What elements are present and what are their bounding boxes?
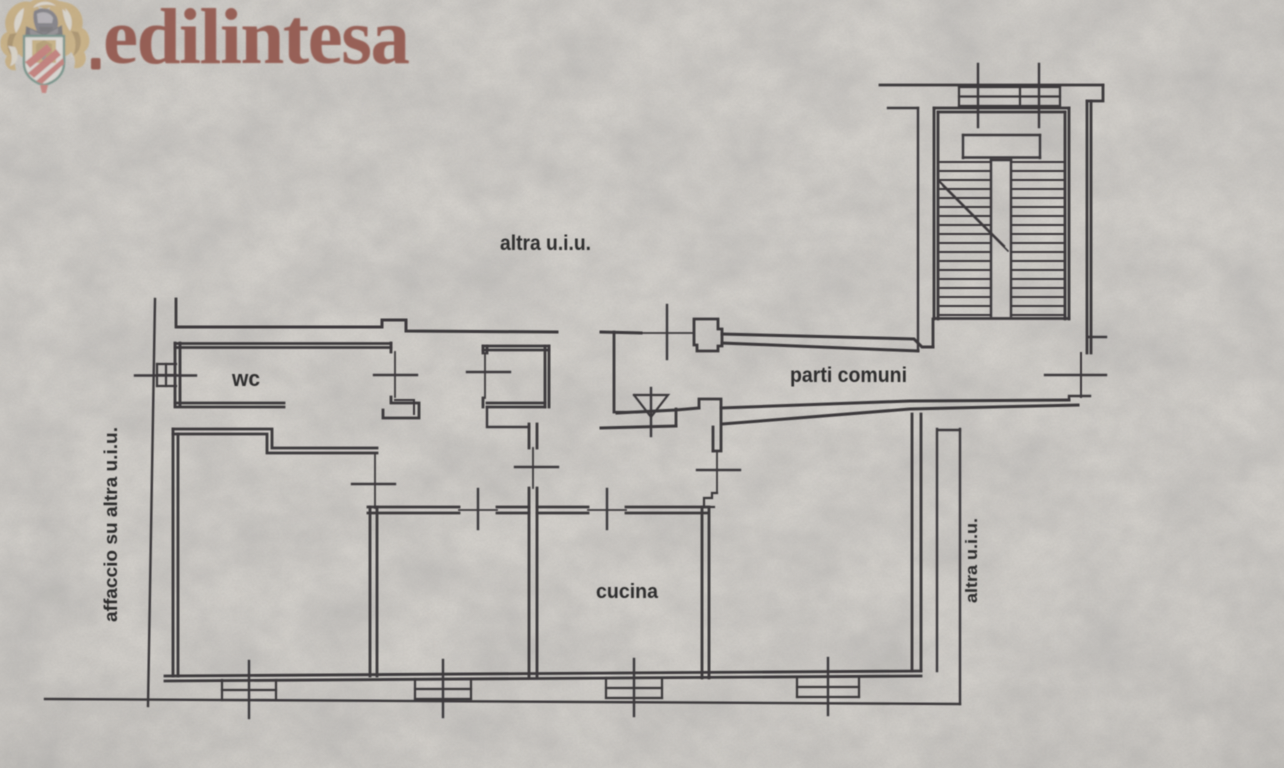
svg-text:parti comuni: parti comuni <box>790 364 907 387</box>
svg-text:affaccio su altra u.i.u.: affaccio su altra u.i.u. <box>101 427 121 622</box>
svg-text:altra u.i.u.: altra u.i.u. <box>962 518 981 603</box>
svg-text:wc: wc <box>231 366 260 391</box>
svg-text:cucina: cucina <box>596 581 659 603</box>
svg-text:altra u.i.u.: altra u.i.u. <box>500 232 591 255</box>
svg-text:edilintesa: edilintesa <box>103 0 410 81</box>
